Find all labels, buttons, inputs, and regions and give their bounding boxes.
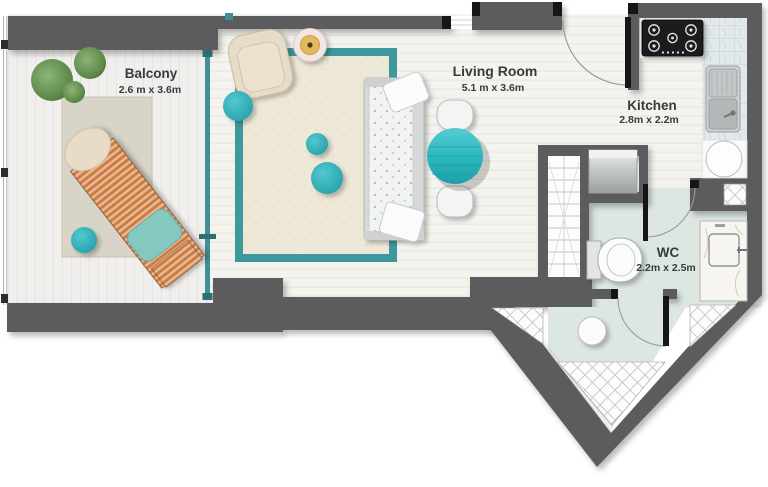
- floor-plan-drawing: Balcony 2.6 m x 3.6m Living Room 5.1 m x…: [0, 0, 768, 487]
- jamb-kitchen: [628, 3, 638, 14]
- wc-door-leaf: [643, 184, 648, 241]
- wall-balcony-bottom: [7, 303, 213, 332]
- balcony-label: Balcony: [125, 66, 178, 81]
- toilet: [587, 238, 642, 282]
- heater-top: [589, 150, 637, 158]
- entrance-door-leaf: [625, 17, 631, 88]
- round-table: [706, 141, 742, 177]
- floor-plan: Balcony 2.6 m x 3.6m Living Room 5.1 m x…: [0, 0, 768, 487]
- hatch-shaft: [724, 184, 746, 205]
- window-gap-glass: [451, 16, 472, 29]
- jamb-tab-left: [472, 2, 480, 16]
- wall-wc-lower: [556, 289, 618, 299]
- wall-bottom-main: [283, 297, 473, 330]
- kitchen-sink: [706, 66, 740, 132]
- dining-chair-top: [437, 100, 473, 130]
- glass-mid-tick: [199, 234, 216, 239]
- side-table-dot: [307, 42, 312, 47]
- kitchen-size: 2.8m x 2.2m: [619, 114, 679, 126]
- living-room-label: Living Room: [453, 63, 538, 79]
- plant-foliage-2: [74, 47, 106, 79]
- glass-cap-top: [203, 50, 213, 57]
- wall-wc-topright: [690, 178, 757, 211]
- window-tick-1: [1, 40, 8, 49]
- balcony-pouf: [71, 227, 97, 253]
- jamb-wc-door: [690, 180, 699, 188]
- wc-lower-door-leaf: [663, 296, 669, 346]
- jamb-window-left: [442, 16, 451, 29]
- staircase: [548, 156, 580, 277]
- water-heater: [589, 150, 637, 193]
- living-room-size: 5.1 m x 3.6m: [462, 82, 524, 94]
- jamb-entry-left: [553, 2, 562, 16]
- window-gap: [451, 16, 472, 29]
- glass-top-marker: [225, 13, 233, 20]
- side-table: [294, 29, 327, 62]
- pedestal-stool: [578, 317, 606, 345]
- sink-drainboard: [709, 69, 737, 97]
- dining-chair-bottom: [437, 186, 473, 217]
- glass-panel: [205, 50, 210, 300]
- window-tick-3: [1, 294, 8, 303]
- vanity: [700, 221, 747, 301]
- vanity-accessory: [715, 224, 725, 227]
- window-mullion-lines: [4, 16, 7, 305]
- wall-right: [747, 18, 762, 295]
- armchair-cushion: [236, 40, 287, 94]
- jamb-wc-lower-door: [611, 289, 618, 299]
- stove: [642, 20, 703, 56]
- pouf-1: [223, 91, 253, 121]
- kitchen-label: Kitchen: [627, 98, 677, 113]
- wall-step-left: [213, 278, 283, 332]
- pouf-3: [311, 162, 343, 194]
- glass-cap-bottom: [203, 293, 213, 300]
- wall-entry-tab: [472, 2, 562, 30]
- plant-foliage-3: [63, 81, 85, 103]
- balcony-size: 2.6 m x 3.6m: [119, 84, 181, 96]
- wall-niche-bottom: [583, 192, 648, 203]
- pouf-2: [306, 133, 328, 155]
- wc-size: 2.2m x 2.5m: [636, 262, 696, 274]
- window-tick-2: [1, 168, 8, 177]
- wall-kitchen-top: [628, 3, 762, 18]
- sofa: [364, 71, 430, 243]
- wc-label: WC: [657, 245, 680, 260]
- balcony-window-wall: [1, 16, 8, 305]
